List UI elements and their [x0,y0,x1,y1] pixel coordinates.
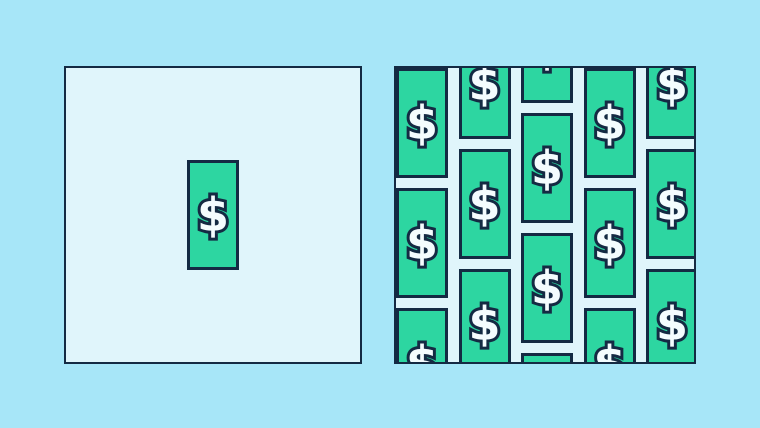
dollar-bill: $ [396,188,448,298]
dollar-bill: $ [396,68,448,178]
dollar-sign: $ [468,301,500,347]
dollar-bill: $ [646,66,696,139]
dollar-bill: $ [521,233,573,343]
dollar-bill: $ [584,188,636,298]
dollar-bill: $ [396,308,448,364]
bill-column: $$$$ [521,66,573,364]
dollar-sign: $ [593,100,625,146]
dollar-bill: $ [584,68,636,178]
dollar-bill: $ [584,308,636,364]
illustration-canvas: $ $$$$$$$$$$$$$$$$$$ [0,0,760,428]
dollar-sign: $ [656,66,688,107]
dollar-sign: $ [656,181,688,227]
many-bills-panel: $$$$$$$$$$$$$$$$$$ [394,66,696,364]
dollar-sign: $ [406,220,438,266]
dollar-sign: $ [531,66,563,71]
bill-column: $$$ [584,68,636,364]
single-bill-panel: $ [64,66,362,364]
bill-column: $$$ [396,68,448,364]
dollar-sign: $ [593,340,625,364]
dollar-sign: $ [531,265,563,311]
dollar-sign: $ [468,181,500,227]
dollar-sign: $ [593,220,625,266]
dollar-bill: $ [521,353,573,364]
dollar-sign: $ [531,145,563,191]
dollar-bill: $ [459,269,511,364]
dollar-bill: $ [646,269,696,364]
dollar-sign: $ [197,192,229,238]
dollar-sign: $ [406,100,438,146]
dollar-sign: $ [656,301,688,347]
dollar-bill: $ [521,113,573,223]
dollar-bill: $ [459,66,511,139]
dollar-sign: $ [406,340,438,364]
dollar-bill: $ [521,66,573,103]
bill-column: $$$$ [646,66,696,364]
dollar-bill: $ [187,160,239,270]
dollar-sign: $ [468,66,500,107]
dollar-bill: $ [646,149,696,259]
bill-column: $$$$ [459,66,511,364]
dollar-bill: $ [459,149,511,259]
